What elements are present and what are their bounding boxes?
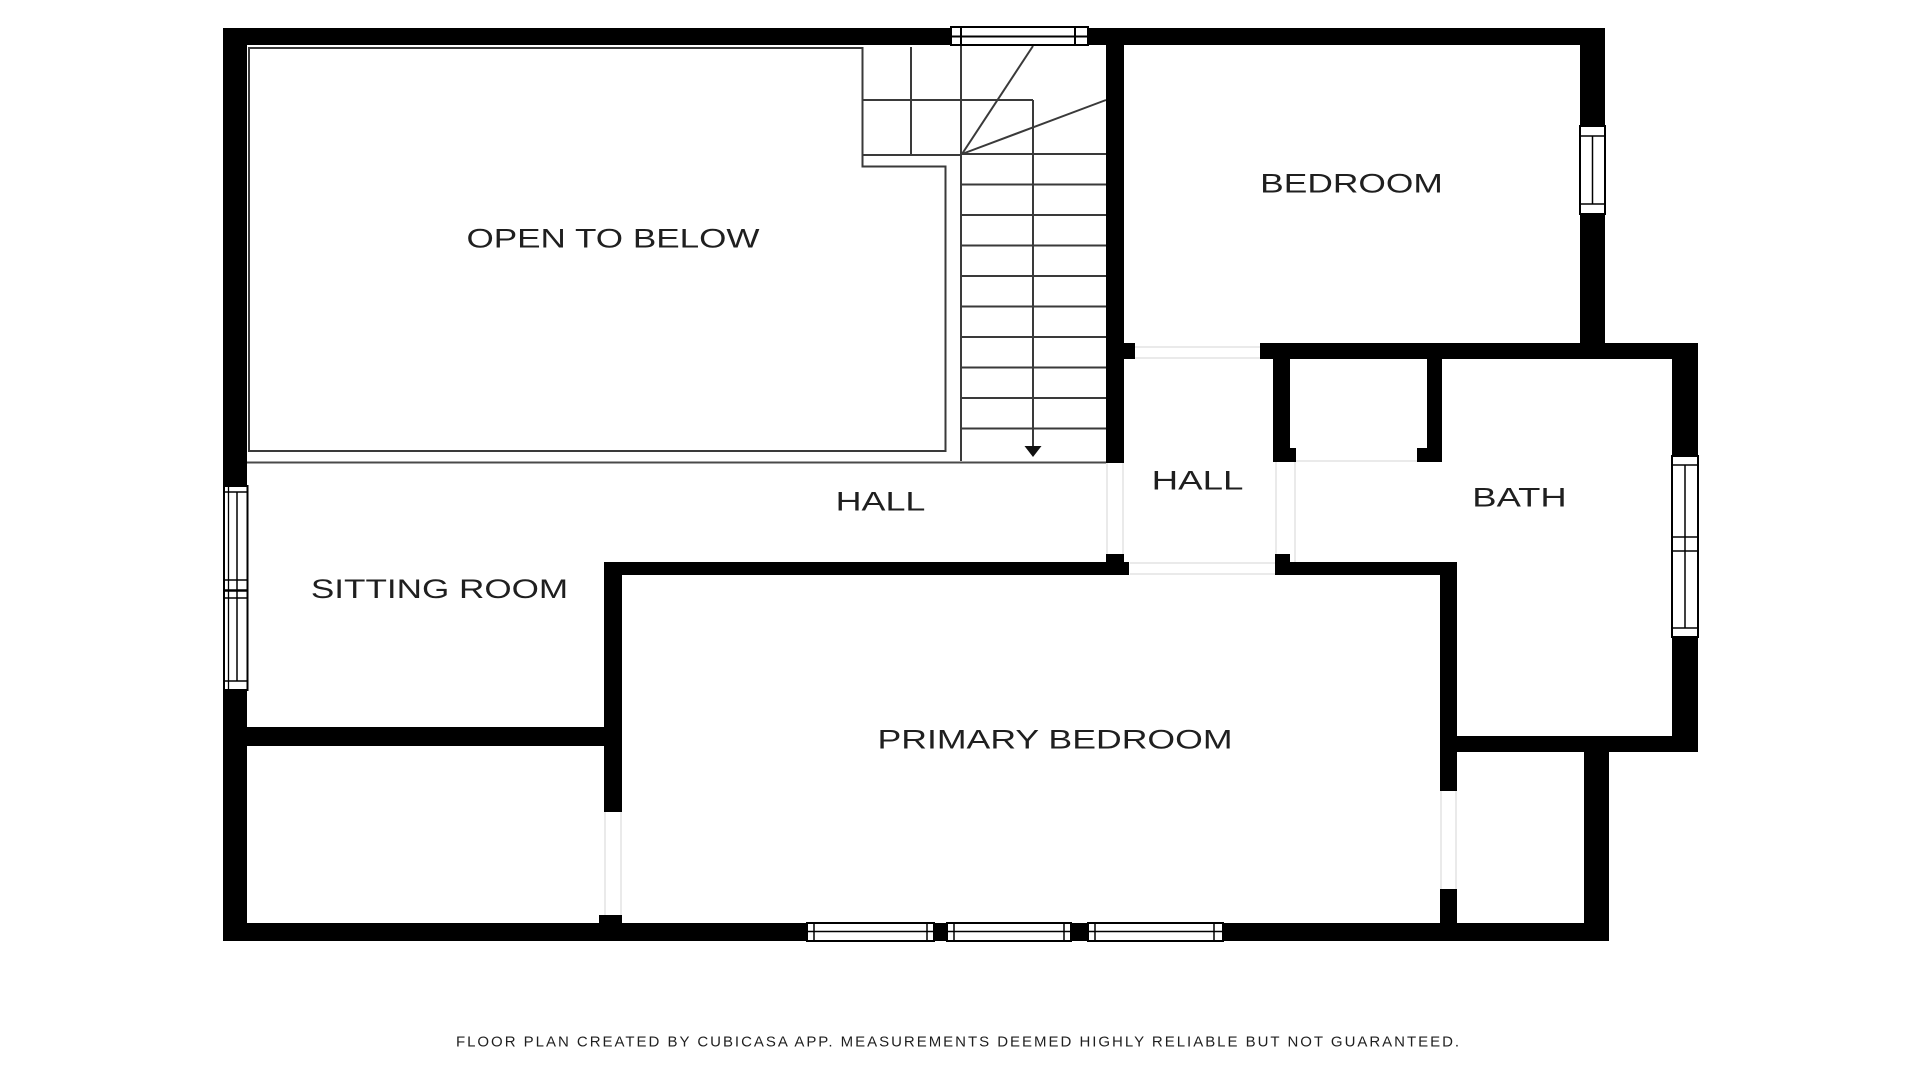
svg-text:HALL: HALL bbox=[836, 486, 926, 517]
svg-text:PRIMARY BEDROOM: PRIMARY BEDROOM bbox=[877, 724, 1232, 755]
svg-text:SITTING ROOM: SITTING ROOM bbox=[311, 574, 568, 604]
svg-text:OPEN TO BELOW: OPEN TO BELOW bbox=[466, 223, 760, 253]
svg-text:FLOOR PLAN CREATED BY CUBICASA: FLOOR PLAN CREATED BY CUBICASA APP. MEAS… bbox=[456, 1034, 1461, 1051]
svg-text:BATH: BATH bbox=[1472, 482, 1566, 512]
svg-text:BEDROOM: BEDROOM bbox=[1260, 168, 1443, 198]
svg-text:HALL: HALL bbox=[1152, 465, 1244, 495]
